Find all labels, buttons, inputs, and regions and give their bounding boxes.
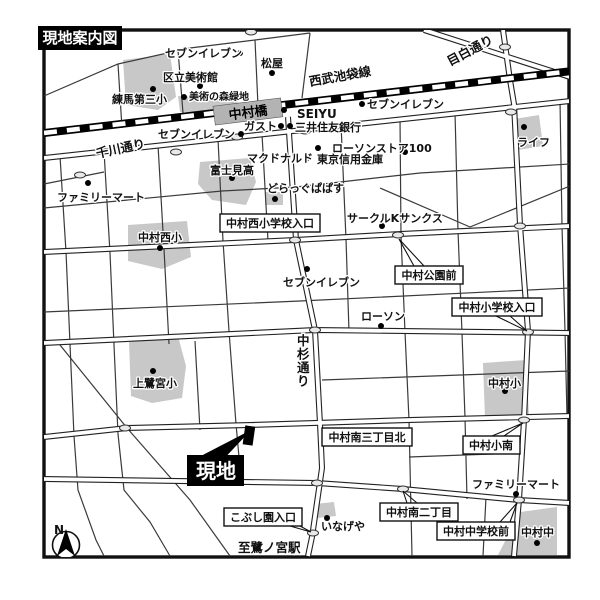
poi-label-seiyu: SEIYU	[297, 107, 337, 121]
poi-label-circle-k-sunkus: サークルKサンクス	[347, 212, 443, 225]
poi-label-fujimi-high: 富士見高	[210, 163, 254, 177]
poi-label-seven-eleven-northeast: セブンイレブン	[367, 97, 444, 111]
intersection-label-nakamura-chugakko-mae: 中村中学校前	[437, 522, 515, 540]
poi-label-seven-eleven-north: セブンイレブン	[165, 46, 242, 60]
svg-text:中村南二丁目: 中村南二丁目	[386, 505, 452, 519]
road-label-to-saginomiya-station: 至鷺ノ宮駅	[238, 540, 301, 555]
poi-label-matsuya: 松屋	[261, 56, 283, 70]
poi-label-familymart-west: ファミリーマート	[57, 191, 145, 204]
poi-label-tokyo-shinyo-kinko: 東京信用金庫	[317, 152, 383, 166]
svg-text:中村中学校前: 中村中学校前	[443, 524, 509, 538]
map-title-label: 現地案内図	[42, 29, 117, 47]
road-label-nakasugi-dori: 中杉通り	[297, 333, 310, 389]
poi-label-nakamura-junior-high: 中村中	[521, 525, 554, 539]
intersection-label-nakamura-minami-nichome: 中村南二丁目	[380, 503, 458, 521]
intersection-label-nakamura-minami-sanchome-kita: 中村南三丁目北	[322, 428, 412, 446]
poi-label-lawson: ローソン	[361, 310, 405, 323]
poi-label-life: ライフ	[517, 136, 550, 149]
intersection-label-nakamura-nishi-shogakko-iriguchi: 中村西小学校入口	[220, 214, 320, 232]
poi-label-seven-eleven-west: セブンイレブン	[158, 127, 235, 141]
building-kamisagi-elementary	[129, 336, 186, 403]
svg-text:中村西小学校入口: 中村西小学校入口	[226, 216, 314, 230]
compass-north-label: N	[54, 523, 64, 537]
poi-label-familymart-southeast: ファミリーマート	[472, 478, 560, 491]
poi-label-gusto: ガスト	[244, 119, 277, 133]
poi-label-ward-museum: 区立美術館	[163, 70, 218, 84]
poi-label-nakamura-elementary: 中村小	[488, 376, 521, 390]
site-label: 現地	[196, 459, 236, 483]
site-guide-map: 中村橋	[0, 0, 600, 600]
poi-label-kamisagi-elementary: 上鷺宮小	[133, 376, 177, 390]
poi-label-nakamura-nishi-elementary: 中村西小	[138, 230, 182, 244]
poi-label-seven-eleven-center: セブンイレブン	[283, 275, 360, 289]
intersection-label-nakamura-shogakko-iriguchi: 中村小学校入口	[452, 298, 542, 316]
poi-label-inageya: いなげや	[321, 519, 365, 533]
poi-label-nerima-daisan-elementary: 練馬第三小	[112, 92, 167, 106]
map-title: 現地案内図	[38, 26, 122, 50]
svg-text:中村公園前: 中村公園前	[402, 268, 457, 282]
intersection-label-nakamura-koen-mae: 中村公園前	[395, 266, 463, 284]
poi-label-mcdonalds: マクドナルド	[247, 152, 313, 165]
poi-label-art-forest-green: 美術の森緑地	[189, 90, 249, 103]
svg-text:中村小南: 中村小南	[469, 438, 513, 452]
intersection-label-nakamura-shonan: 中村小南	[463, 436, 520, 454]
intersection-label-kobushien-iriguchi: こぶし園入口	[224, 508, 302, 526]
poi-label-smbc-bank: 三井住友銀行	[295, 120, 361, 134]
poi-label-drug-papasu: どらっぐぱぱす	[267, 181, 344, 195]
svg-text:こぶし園入口: こぶし園入口	[230, 511, 296, 524]
svg-text:中村南三丁目北: 中村南三丁目北	[329, 430, 406, 444]
svg-text:中村小学校入口: 中村小学校入口	[459, 300, 536, 314]
